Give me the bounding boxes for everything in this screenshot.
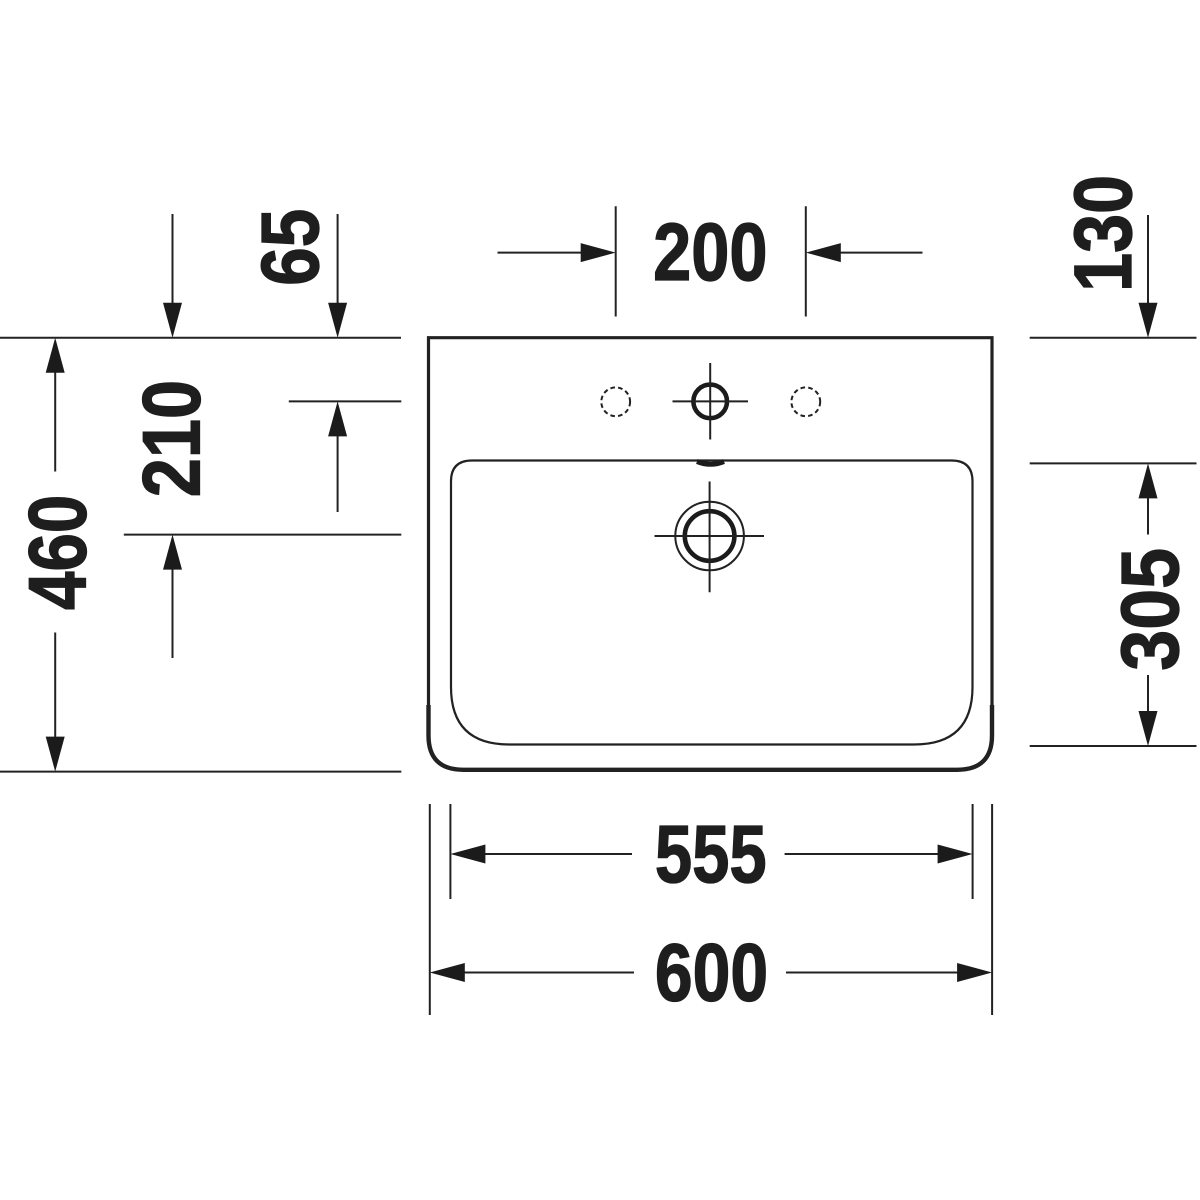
svg-text:555: 555	[655, 809, 767, 900]
svg-text:200: 200	[653, 207, 767, 298]
svg-text:210: 210	[126, 380, 217, 497]
svg-text:305: 305	[1105, 548, 1196, 671]
svg-text:65: 65	[245, 209, 336, 286]
svg-text:130: 130	[1058, 175, 1149, 292]
svg-text:600: 600	[655, 928, 768, 1019]
svg-text:460: 460	[13, 495, 104, 610]
